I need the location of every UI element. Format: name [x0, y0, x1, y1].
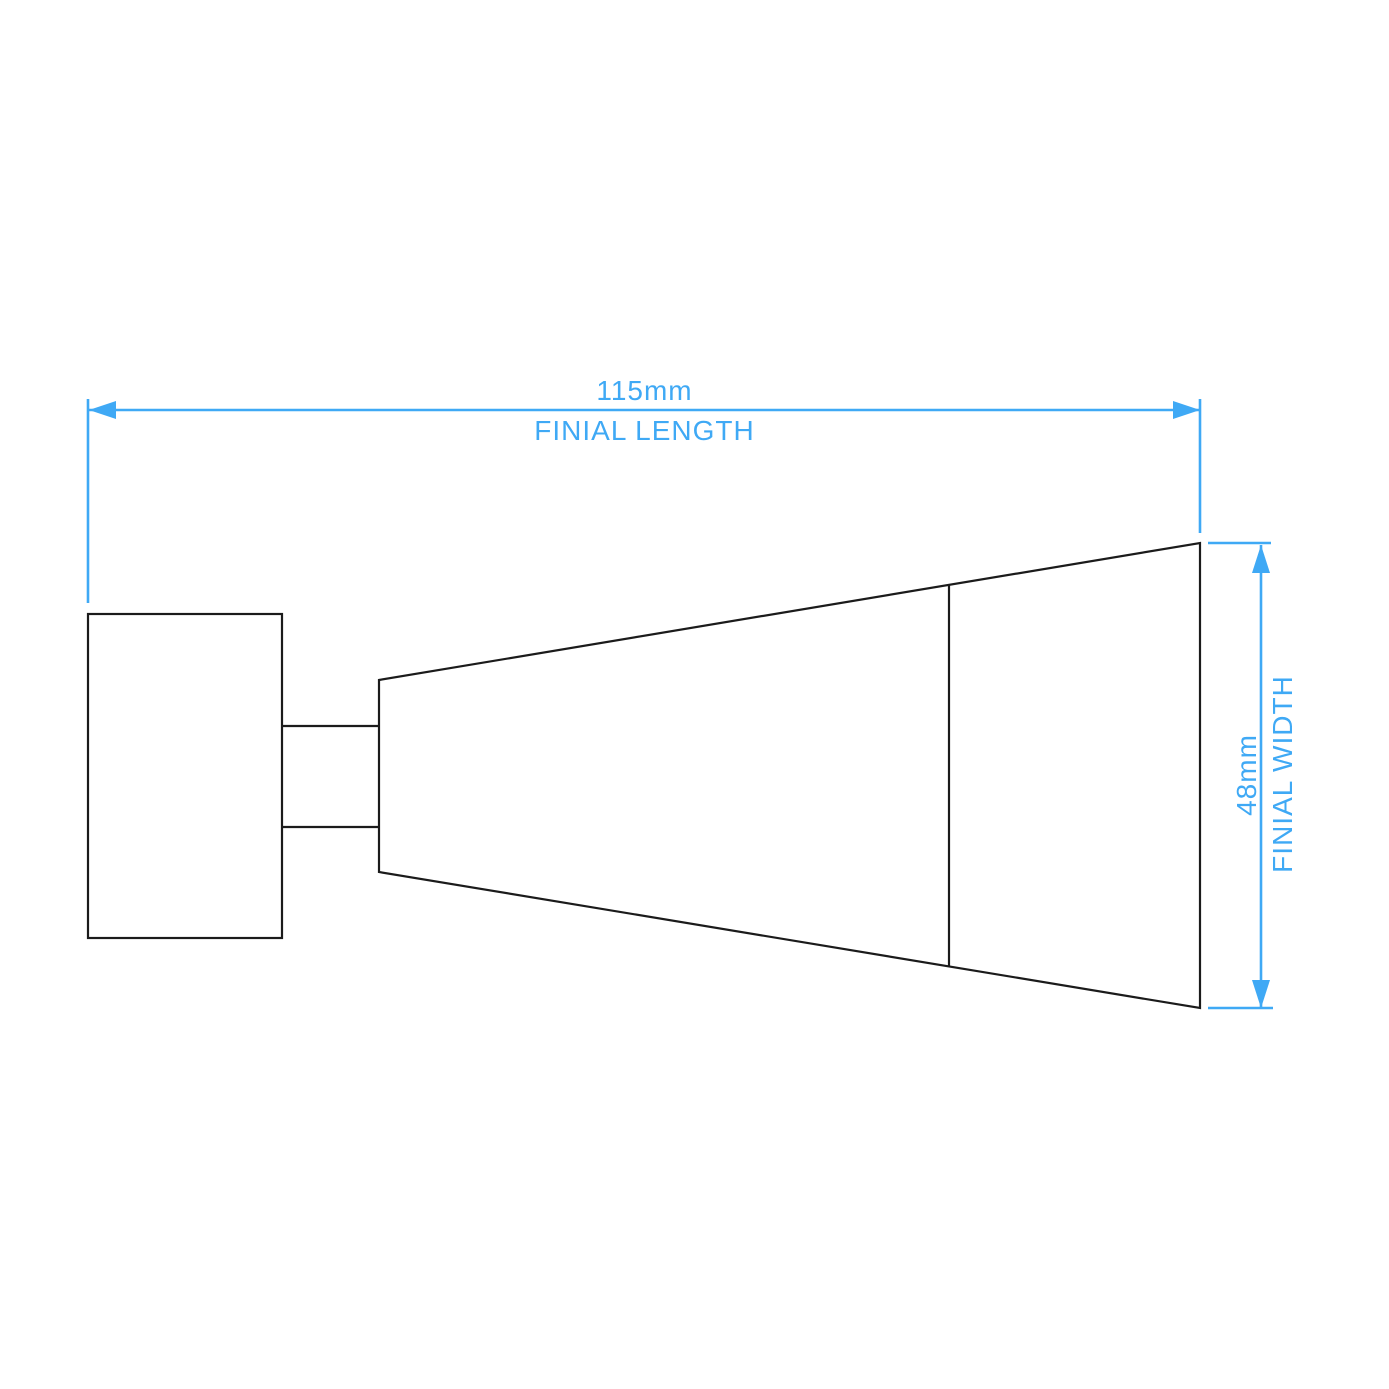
- drawing-canvas: [0, 0, 1389, 1389]
- width-arrowhead-down-icon: [1252, 980, 1270, 1008]
- finial-outline-group: [88, 543, 1200, 1008]
- dimension-lines-group: [88, 399, 1273, 1008]
- width-arrowhead-up-icon: [1252, 545, 1270, 573]
- finial-base-rectangle: [88, 614, 282, 938]
- finial-width-label: FINIAL WIDTH: [1268, 675, 1298, 873]
- dimension-arrowheads-group: [89, 401, 1270, 1008]
- finial-length-value: 115mm: [89, 376, 1200, 406]
- finial-width-value: 48mm: [1232, 734, 1262, 816]
- finial-cone-body: [379, 543, 1200, 1008]
- finial-dimension-diagram: 115mm FINIAL LENGTH 48mm FINIAL WIDTH: [0, 0, 1389, 1389]
- finial-length-label: FINIAL LENGTH: [89, 416, 1200, 446]
